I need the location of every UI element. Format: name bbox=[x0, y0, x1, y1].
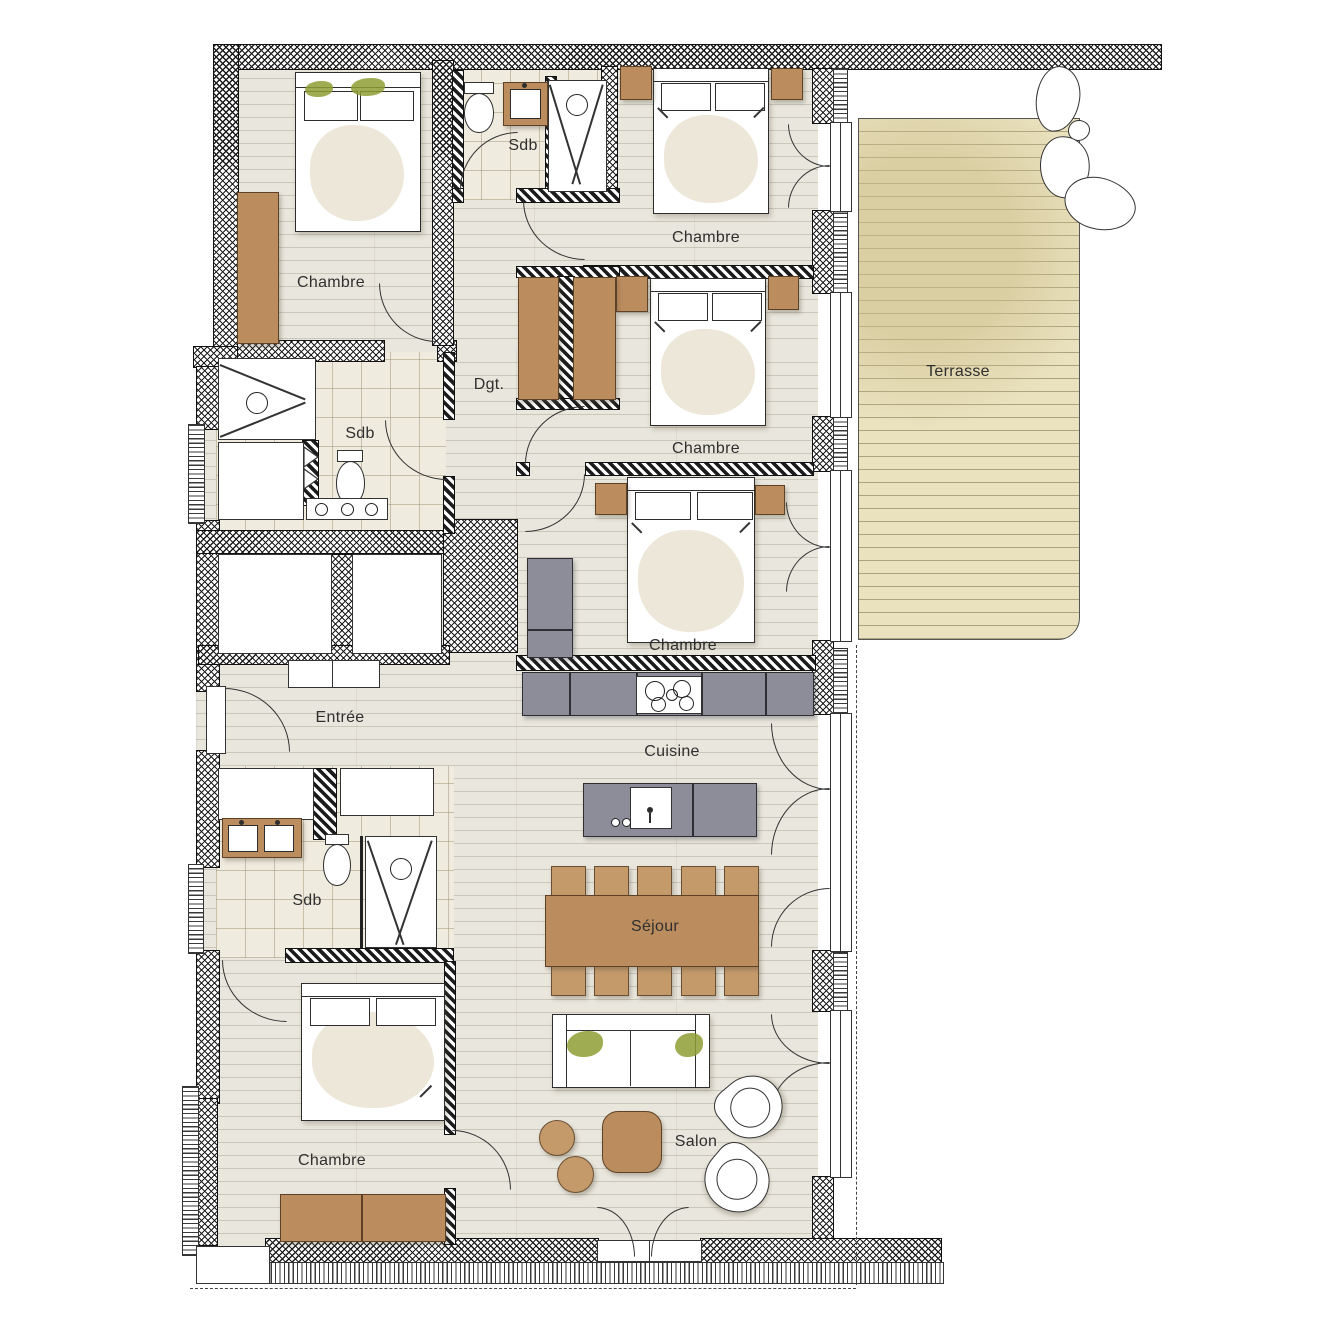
shower-sw-screen bbox=[360, 836, 363, 948]
label-cuisine: Cuisine bbox=[644, 743, 699, 761]
pier-right-1 bbox=[812, 68, 834, 124]
window-right-5 bbox=[833, 952, 848, 1012]
nightstand-n-left bbox=[620, 66, 652, 100]
wall-dgt-chunk bbox=[443, 519, 518, 653]
label-sdb-n: Sdb bbox=[508, 137, 537, 155]
dining-chair bbox=[681, 866, 716, 896]
wall-left-4 bbox=[196, 750, 220, 868]
wall-chambre-sw-e-a bbox=[444, 961, 456, 1135]
sdbsw-closet-2 bbox=[340, 768, 434, 816]
nightstand-n-right bbox=[771, 68, 803, 100]
window-right-1 bbox=[833, 68, 848, 124]
label-dgt: Dgt. bbox=[474, 376, 505, 394]
wall-left-1 bbox=[196, 366, 220, 430]
label-chambre-sw: Chambre bbox=[298, 1152, 366, 1170]
pier-right-2 bbox=[812, 210, 834, 294]
pier-right-5 bbox=[812, 950, 834, 1012]
wardrobe-nw bbox=[237, 192, 279, 344]
wall-sdbw-east-a bbox=[443, 352, 455, 420]
closet-2 bbox=[352, 554, 442, 654]
bed-se bbox=[627, 477, 755, 643]
window-left-1 bbox=[188, 424, 205, 524]
glazing-right-5 bbox=[830, 1010, 852, 1178]
wall-left-6 bbox=[198, 1098, 218, 1246]
cooktop bbox=[636, 676, 702, 714]
pier-right-6 bbox=[812, 1176, 834, 1245]
wall-sdbsw-south bbox=[285, 948, 454, 963]
wall-sdbn-south-l bbox=[452, 188, 464, 203]
wardrobe-se bbox=[527, 558, 573, 658]
bed-sw bbox=[301, 983, 445, 1121]
window-sill-bottom-left bbox=[196, 1246, 270, 1284]
shower-w-head bbox=[246, 392, 268, 414]
entry-door-leaf bbox=[206, 686, 226, 754]
window-right-2 bbox=[833, 210, 848, 294]
label-chambre-n: Chambre bbox=[672, 229, 740, 247]
vanity-sw bbox=[222, 818, 302, 858]
label-sdb-w: Sdb bbox=[345, 425, 374, 443]
floor-plan: Chambre Sdb Chambre Chambre Dgt. Sdb Ter… bbox=[0, 0, 1333, 1333]
entree-closet-1 bbox=[288, 660, 334, 688]
dining-chair bbox=[594, 866, 629, 896]
sink-n bbox=[503, 82, 548, 126]
wardrobe-block-left bbox=[518, 277, 559, 400]
dining-chair bbox=[637, 866, 672, 896]
bed-n bbox=[653, 68, 769, 214]
wall-left-5 bbox=[196, 950, 220, 1104]
wardrobe-block-right bbox=[573, 277, 616, 400]
bed-e bbox=[650, 278, 766, 426]
dining-chair bbox=[724, 966, 759, 996]
shower-n-head bbox=[566, 94, 588, 116]
glazing-right-4 bbox=[830, 713, 852, 952]
label-terrasse: Terrasse bbox=[926, 363, 990, 381]
label-chambre-se: Chambre bbox=[649, 637, 717, 655]
folding-door-w bbox=[303, 446, 321, 490]
dining-chair bbox=[724, 866, 759, 896]
entree-closet-2 bbox=[332, 660, 380, 688]
label-salon: Salon bbox=[675, 1133, 717, 1151]
wall-closet-divider bbox=[330, 554, 354, 654]
bench-w bbox=[306, 498, 388, 520]
pier-right-4 bbox=[812, 640, 834, 715]
vanity-w bbox=[218, 442, 304, 520]
wall-sdbw-south bbox=[196, 530, 452, 554]
wall-sdbw-east-b bbox=[443, 476, 455, 534]
label-sdb-sw: Sdb bbox=[292, 892, 321, 910]
nightstand-se-right bbox=[755, 485, 785, 515]
coffee-table bbox=[602, 1111, 662, 1173]
label-entree: Entrée bbox=[316, 709, 365, 727]
pouf-1 bbox=[539, 1120, 575, 1156]
dining-chair bbox=[681, 966, 716, 996]
sofa bbox=[552, 1014, 710, 1088]
nightstand-e-right bbox=[768, 276, 799, 310]
window-right-4 bbox=[833, 648, 848, 714]
glazing-right-1 bbox=[830, 122, 852, 212]
dining-chair bbox=[551, 866, 586, 896]
nightstand-e-left bbox=[616, 276, 648, 312]
wall-bottom-right bbox=[700, 1238, 942, 1264]
pouf-2 bbox=[557, 1156, 594, 1193]
dining-chair bbox=[551, 966, 586, 996]
glazing-right-3 bbox=[830, 470, 852, 642]
pier-right-3 bbox=[812, 416, 834, 472]
dining-chair bbox=[594, 966, 629, 996]
sdbsw-closet-1 bbox=[218, 768, 314, 820]
label-sejour: Séjour bbox=[631, 918, 679, 936]
wall-top bbox=[213, 44, 1162, 70]
bed-nw bbox=[295, 72, 421, 232]
kitchen-island bbox=[583, 783, 757, 837]
boundary-dashed-horizontal bbox=[190, 1288, 856, 1289]
label-chambre-e: Chambre bbox=[672, 440, 740, 458]
window-bottom-band bbox=[230, 1262, 944, 1284]
dresser-sw bbox=[280, 1194, 446, 1242]
window-right-3 bbox=[833, 416, 848, 472]
wall-left-upper bbox=[213, 44, 239, 356]
nightstand-se-left bbox=[595, 483, 627, 515]
boundary-dashed-vertical bbox=[856, 645, 857, 1285]
toilet-n-bowl bbox=[464, 93, 494, 133]
label-chambre-nw: Chambre bbox=[297, 274, 365, 292]
window-left-3 bbox=[182, 1086, 199, 1256]
wall-sdbsw-divider bbox=[313, 768, 337, 840]
wall-chambre-e-s bbox=[585, 462, 814, 476]
shower-sw-head bbox=[390, 858, 412, 880]
glazing-right-2 bbox=[830, 292, 852, 418]
closet-1 bbox=[218, 554, 332, 654]
window-left-2 bbox=[188, 864, 204, 954]
dining-chair bbox=[637, 966, 672, 996]
toilet-sw-bowl bbox=[323, 844, 351, 886]
